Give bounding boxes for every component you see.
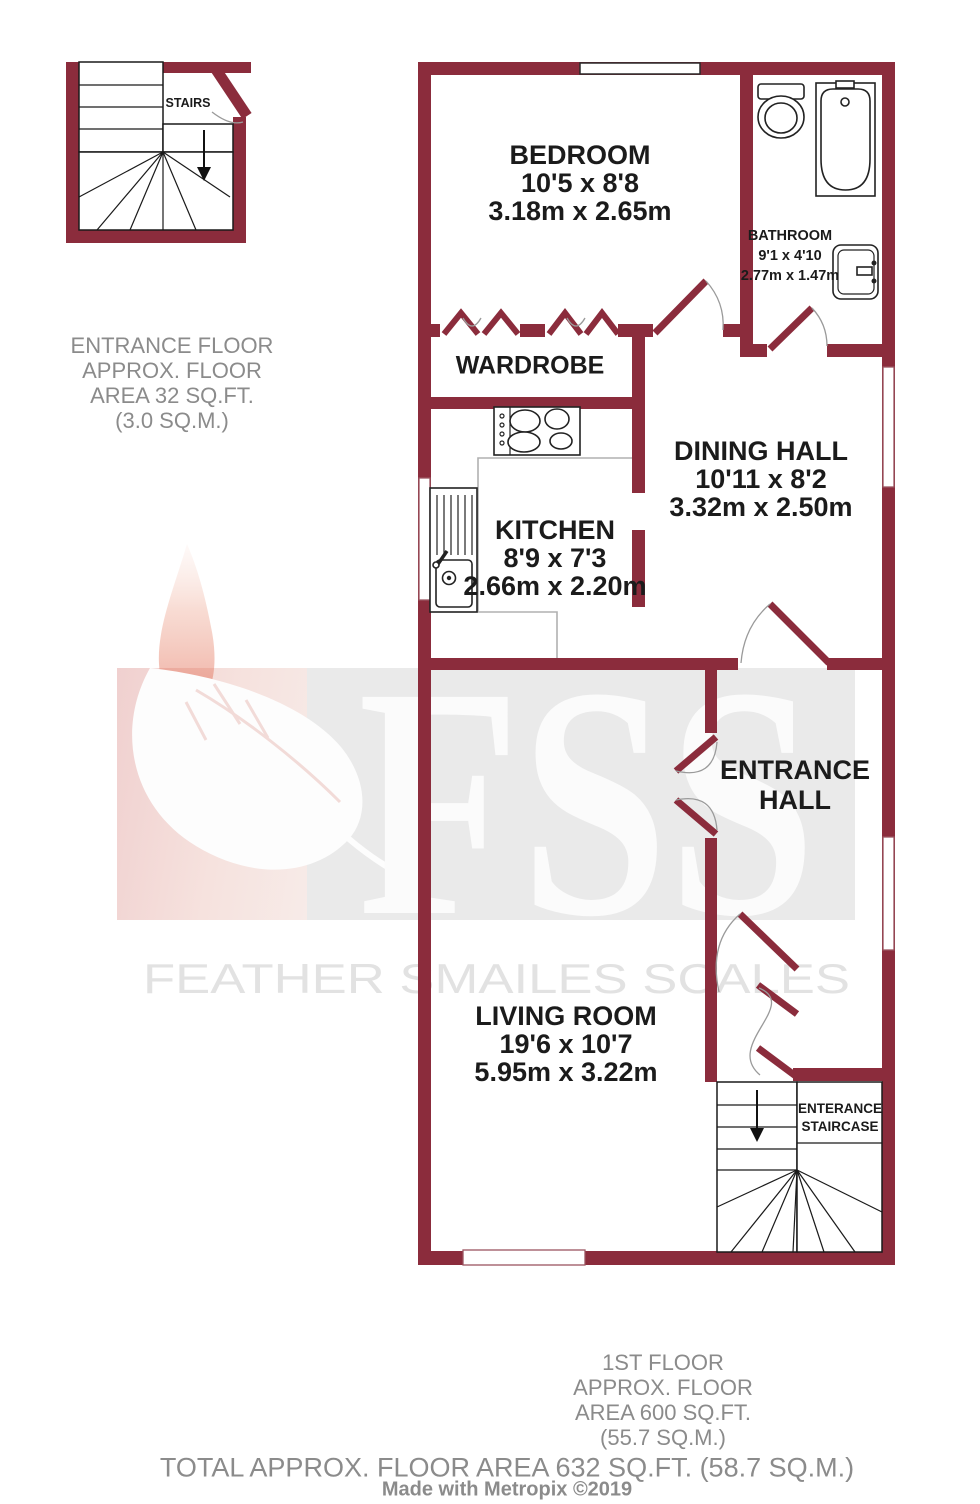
bathroom-name: BATHROOM — [741, 226, 839, 246]
first-floor-note: 1ST FLOOR APPROX. FLOOR AREA 600 SQ.FT. … — [573, 1350, 753, 1450]
living-room-imperial: 19'6 x 10'7 — [474, 1030, 657, 1058]
kitchen-label: KITCHEN 8'9 x 7'3 2.66m x 2.20m — [463, 516, 646, 600]
bathroom-imperial: 9'1 x 4'10 — [741, 246, 839, 266]
dining-hall-name: DINING HALL — [669, 437, 852, 465]
hob — [494, 407, 580, 455]
staircase-line1: ENTERANCE — [798, 1100, 882, 1118]
entrance-hall-door — [716, 914, 797, 992]
floorplan-page: FSS FEATHER SMAILES SCALES — [0, 0, 980, 1504]
wardrobe-label: WARDROBE — [456, 352, 605, 381]
bedroom-name: BEDROOM — [488, 141, 671, 169]
entrance-floor-line2: APPROX. FLOOR — [71, 358, 274, 383]
entrance-hall-line2: HALL — [720, 785, 870, 815]
first-floor-line3: AREA 600 SQ.FT. — [573, 1400, 753, 1425]
entrance-floor-stairs — [66, 62, 251, 243]
kitchen-imperial: 8'9 x 7'3 — [463, 544, 646, 572]
entrance-floor-line1: ENTRANCE FLOOR — [71, 333, 274, 358]
stairs-label: STAIRS — [166, 96, 211, 110]
living-room-name: LIVING ROOM — [474, 1002, 657, 1030]
metropix-credit: Made with Metropix ©2019 — [382, 1479, 632, 1502]
entrance-floor-line4: (3.0 SQ.M.) — [71, 408, 274, 433]
enterance-staircase-label: ENTERANCE STAIRCASE — [798, 1100, 882, 1136]
first-floor-line1: 1ST FLOOR — [573, 1350, 753, 1375]
toilet — [758, 84, 804, 138]
living-window — [463, 1250, 585, 1265]
kitchen-metric: 2.66m x 2.20m — [463, 572, 646, 600]
kitchen-window — [419, 478, 430, 600]
dining-hall-metric: 3.32m x 2.50m — [669, 493, 852, 521]
dining-hall-label: DINING HALL 10'11 x 8'2 3.32m x 2.50m — [669, 437, 852, 521]
kitchen-name: KITCHEN — [463, 516, 646, 544]
dining-hall-door — [741, 604, 829, 663]
bathroom-label: BATHROOM 9'1 x 4'10 2.77m x 1.47m — [741, 226, 839, 286]
entrance-floor-note: ENTRANCE FLOOR APPROX. FLOOR AREA 32 SQ.… — [71, 333, 274, 433]
bathtub — [816, 81, 875, 196]
bedroom-window — [580, 63, 700, 74]
entrance-floor-line3: AREA 32 SQ.FT. — [71, 383, 274, 408]
bathroom-door — [770, 308, 827, 349]
hall-window — [883, 837, 894, 950]
first-floor-line2: APPROX. FLOOR — [573, 1375, 753, 1400]
dining-window — [883, 367, 894, 487]
entrance-hall-line1: ENTRANCE — [720, 755, 870, 785]
front-door — [750, 985, 797, 1077]
bedroom-label: BEDROOM 10'5 x 8'8 3.18m x 2.65m — [488, 141, 671, 225]
living-room-double-door — [676, 737, 717, 834]
entrance-hall-label: ENTRANCE HALL — [720, 755, 870, 815]
bedroom-imperial: 10'5 x 8'8 — [488, 169, 671, 197]
first-floor-line4: (55.7 SQ.M.) — [573, 1425, 753, 1450]
living-room-metric: 5.95m x 3.22m — [474, 1058, 657, 1086]
dining-hall-imperial: 10'11 x 8'2 — [669, 465, 852, 493]
living-room-label: LIVING ROOM 19'6 x 10'7 5.95m x 3.22m — [474, 1002, 657, 1086]
bedroom-metric: 3.18m x 2.65m — [488, 197, 671, 225]
bathroom-metric: 2.77m x 1.47m — [741, 266, 839, 286]
bathroom-sink — [833, 245, 878, 299]
staircase-line2: STAIRCASE — [798, 1118, 882, 1136]
bedroom-door — [655, 281, 723, 333]
